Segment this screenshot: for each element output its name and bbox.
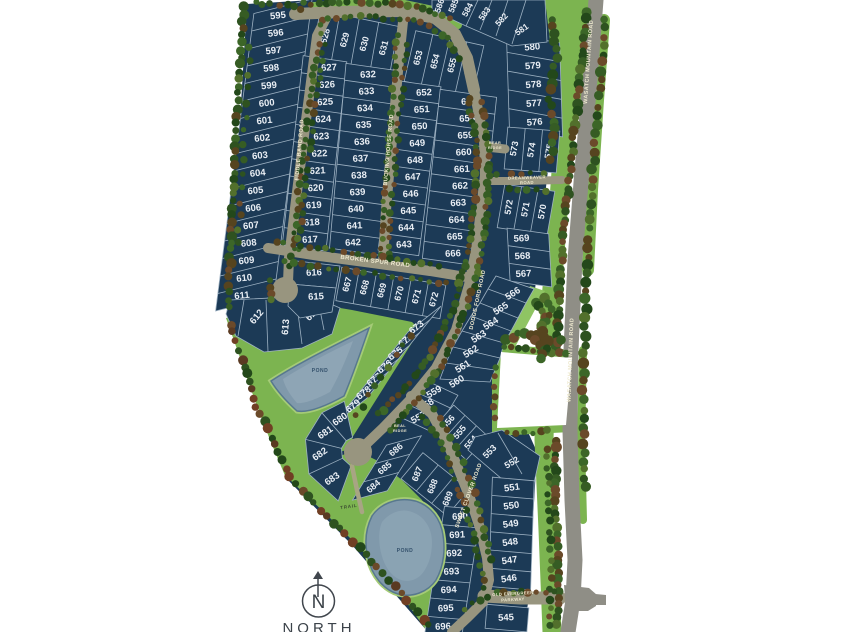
- svg-text:595: 595: [270, 10, 288, 23]
- svg-text:643: 643: [396, 239, 412, 251]
- svg-text:604: 604: [249, 167, 267, 180]
- svg-text:644: 644: [398, 222, 415, 234]
- svg-text:626: 626: [319, 79, 335, 91]
- svg-text:ROAD: ROAD: [520, 180, 534, 185]
- svg-text:635: 635: [355, 119, 372, 131]
- svg-text:578: 578: [525, 79, 542, 91]
- svg-text:619: 619: [306, 200, 322, 212]
- svg-text:638: 638: [351, 170, 367, 182]
- svg-text:660: 660: [455, 147, 471, 159]
- svg-text:N: N: [312, 592, 326, 613]
- svg-text:664: 664: [448, 214, 465, 226]
- svg-text:632: 632: [360, 69, 376, 81]
- svg-text:596: 596: [267, 27, 284, 40]
- svg-text:651: 651: [414, 104, 431, 116]
- svg-text:691: 691: [449, 529, 466, 541]
- svg-text:567: 567: [515, 268, 531, 280]
- svg-text:634: 634: [357, 103, 374, 115]
- svg-text:662: 662: [452, 181, 468, 193]
- svg-text:620: 620: [307, 183, 323, 195]
- svg-text:BEAL: BEAL: [394, 424, 406, 428]
- svg-text:650: 650: [411, 121, 427, 133]
- svg-text:663: 663: [450, 197, 466, 209]
- svg-text:648: 648: [407, 155, 423, 167]
- svg-text:641: 641: [346, 220, 363, 232]
- svg-text:RIDGE: RIDGE: [488, 146, 502, 150]
- svg-text:598: 598: [263, 62, 280, 75]
- svg-text:618: 618: [304, 217, 320, 229]
- svg-text:693: 693: [443, 566, 459, 578]
- svg-text:615: 615: [308, 291, 325, 303]
- svg-text:613: 613: [280, 319, 292, 336]
- svg-text:546: 546: [500, 572, 517, 585]
- svg-text:694: 694: [440, 584, 457, 596]
- svg-text:BEAR: BEAR: [489, 141, 501, 145]
- svg-text:NORTH: NORTH: [282, 620, 355, 632]
- svg-text:548: 548: [502, 536, 519, 549]
- svg-text:647: 647: [405, 172, 421, 184]
- svg-text:609: 609: [238, 255, 255, 268]
- svg-text:579: 579: [525, 60, 542, 72]
- svg-text:636: 636: [354, 136, 370, 148]
- svg-text:621: 621: [309, 165, 326, 177]
- svg-text:610: 610: [236, 272, 253, 285]
- svg-text:550: 550: [503, 500, 520, 513]
- svg-text:692: 692: [446, 548, 462, 560]
- svg-text:649: 649: [409, 138, 425, 150]
- svg-text:645: 645: [400, 205, 417, 217]
- svg-text:665: 665: [447, 231, 464, 243]
- svg-text:646: 646: [402, 188, 418, 200]
- svg-text:577: 577: [526, 98, 543, 110]
- svg-text:551: 551: [503, 481, 521, 494]
- svg-text:600: 600: [258, 97, 275, 110]
- svg-text:POND: POND: [312, 368, 328, 374]
- svg-text:POND: POND: [397, 548, 413, 554]
- svg-text:606: 606: [245, 202, 262, 215]
- svg-text:661: 661: [454, 164, 471, 176]
- svg-text:637: 637: [352, 153, 368, 165]
- svg-text:633: 633: [358, 86, 374, 98]
- svg-text:549: 549: [502, 518, 519, 531]
- svg-text:605: 605: [247, 185, 265, 198]
- svg-text:569: 569: [513, 233, 529, 245]
- svg-text:640: 640: [348, 204, 364, 216]
- svg-text:666: 666: [445, 248, 461, 260]
- svg-text:576: 576: [526, 116, 543, 128]
- svg-text:RIDGE: RIDGE: [393, 429, 407, 433]
- svg-text:597: 597: [265, 45, 282, 58]
- svg-text:695: 695: [438, 603, 455, 615]
- svg-text:599: 599: [261, 80, 278, 93]
- svg-text:601: 601: [256, 115, 274, 128]
- svg-text:607: 607: [243, 220, 260, 233]
- svg-text:603: 603: [252, 150, 269, 163]
- svg-text:624: 624: [315, 114, 332, 126]
- svg-text:639: 639: [349, 187, 365, 199]
- svg-text:602: 602: [254, 132, 271, 145]
- svg-text:545: 545: [498, 612, 515, 624]
- svg-text:652: 652: [416, 87, 432, 99]
- svg-text:547: 547: [501, 554, 518, 567]
- svg-text:642: 642: [345, 237, 361, 249]
- svg-text:608: 608: [240, 237, 257, 250]
- svg-text:568: 568: [514, 251, 530, 263]
- svg-text:625: 625: [317, 96, 334, 108]
